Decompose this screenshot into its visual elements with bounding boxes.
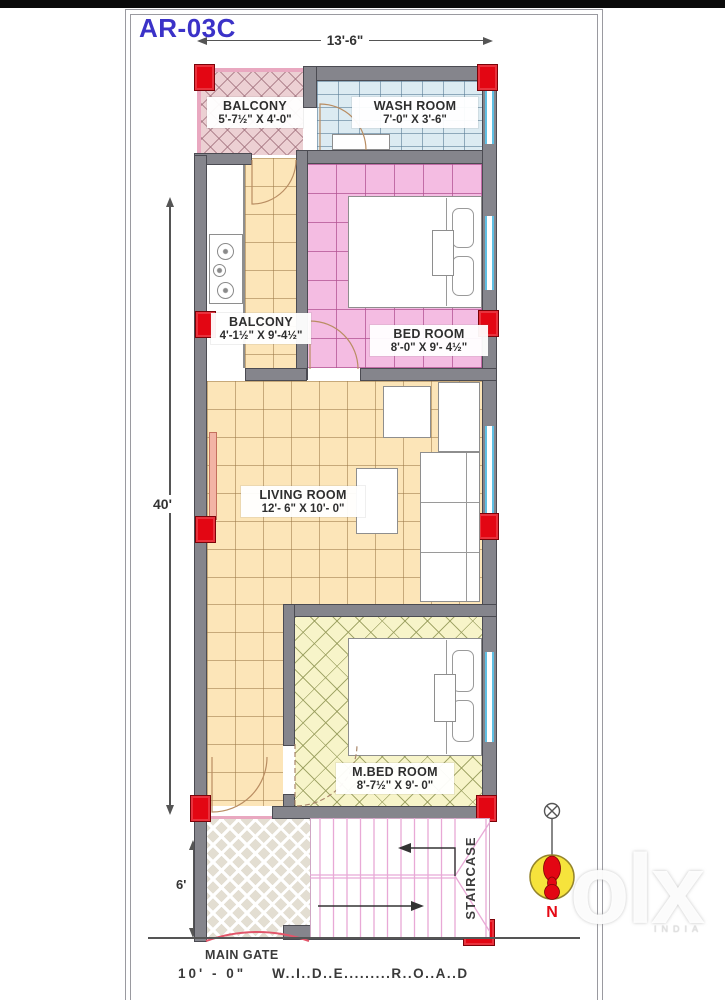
- wall: [272, 806, 497, 819]
- main-gate-label: MAIN GATE: [205, 948, 279, 962]
- road-width-label: 10' - 0": [178, 966, 246, 981]
- wall: [296, 150, 308, 380]
- wall: [360, 368, 497, 381]
- window-salmon: [209, 432, 217, 520]
- dim-arrow-down: [166, 805, 174, 815]
- room-name: BALCONY: [211, 99, 299, 113]
- road-name-label: W..I..D..E.........R..O..A..D: [272, 966, 469, 981]
- road-line: [148, 937, 580, 939]
- room-size: 8'-7½" X 9'- 0": [340, 780, 450, 792]
- wall: [310, 66, 497, 81]
- floorplan-page: AR-03C 13'-6" 40' 6': [0, 0, 725, 1000]
- dim-line: [369, 40, 483, 41]
- bed-cushion: [434, 674, 456, 722]
- dimension-left-label: 40': [150, 495, 175, 513]
- pillow: [452, 256, 474, 296]
- room-name: BED ROOM: [374, 327, 484, 341]
- wall: [194, 155, 207, 942]
- column-block: [476, 795, 497, 822]
- column-block: [478, 513, 499, 540]
- dimension-top: 13'-6": [197, 33, 493, 48]
- label-wash-room: WASH ROOM 7'-0" X 3'-6": [352, 97, 478, 128]
- top-black-bar: [0, 0, 725, 8]
- room-size: 5'-7½" X 4'-0": [211, 114, 299, 126]
- dimension-top-label: 13'-6": [321, 33, 370, 48]
- room-size: 8'-0" X 9'- 4½": [374, 342, 484, 354]
- window: [485, 652, 494, 742]
- room-size: 12'- 6" X 10'- 0": [245, 503, 361, 515]
- column-block: [190, 795, 211, 822]
- wall: [283, 604, 497, 617]
- label-master-bedroom: M.BED ROOM 8'-7½" X 9'- 0": [336, 763, 454, 794]
- washroom-counter: [332, 134, 390, 150]
- window: [485, 88, 494, 144]
- room-name: WASH ROOM: [356, 99, 474, 113]
- room-name: BALCONY: [215, 315, 307, 329]
- dim-line: [207, 40, 321, 41]
- room-name: LIVING ROOM: [245, 488, 361, 502]
- label-balcony-top: BALCONY 5'-7½" X 4'-0": [207, 97, 303, 128]
- dim-arrow-left: [197, 37, 207, 45]
- dimension-porch-label: 6': [173, 876, 189, 893]
- window: [485, 426, 494, 518]
- room-name: M.BED ROOM: [340, 765, 450, 779]
- column-block: [477, 64, 498, 91]
- bed-cushion: [432, 230, 454, 276]
- column-block: [195, 516, 216, 543]
- label-living-room: LIVING ROOM 12'- 6" X 10'- 0": [241, 486, 365, 517]
- label-bed-room: BED ROOM 8'-0" X 9'- 4½": [370, 325, 488, 356]
- label-balcony-side: BALCONY 4'-1½" X 9'-4½": [211, 313, 311, 344]
- wall: [303, 66, 317, 108]
- column-block: [463, 919, 495, 946]
- room-corridor: [207, 604, 283, 806]
- wall: [283, 604, 295, 746]
- table: [383, 386, 431, 438]
- room-size: 7'-0" X 3'-6": [356, 114, 474, 126]
- stove-burner: [217, 243, 234, 260]
- wall: [245, 368, 307, 381]
- sofa-seam: [421, 552, 479, 553]
- table: [438, 382, 480, 452]
- road-text: 10' - 0" W..I..D..E.........R..O..A..D: [178, 966, 469, 981]
- pillow: [452, 208, 474, 248]
- dim-arrow-right: [483, 37, 493, 45]
- room-porch: [203, 819, 310, 939]
- sofa-backrest-line: [466, 453, 467, 601]
- sofa-seam: [421, 502, 479, 503]
- column-block: [194, 64, 215, 91]
- sofa: [420, 452, 480, 602]
- window: [485, 216, 494, 290]
- room-size: 4'-1½" X 9'-4½": [215, 330, 307, 342]
- olx-watermark: olx INDIA: [545, 840, 725, 934]
- stove-burner: [213, 264, 226, 277]
- wall: [296, 150, 497, 164]
- stove-burner: [217, 282, 234, 299]
